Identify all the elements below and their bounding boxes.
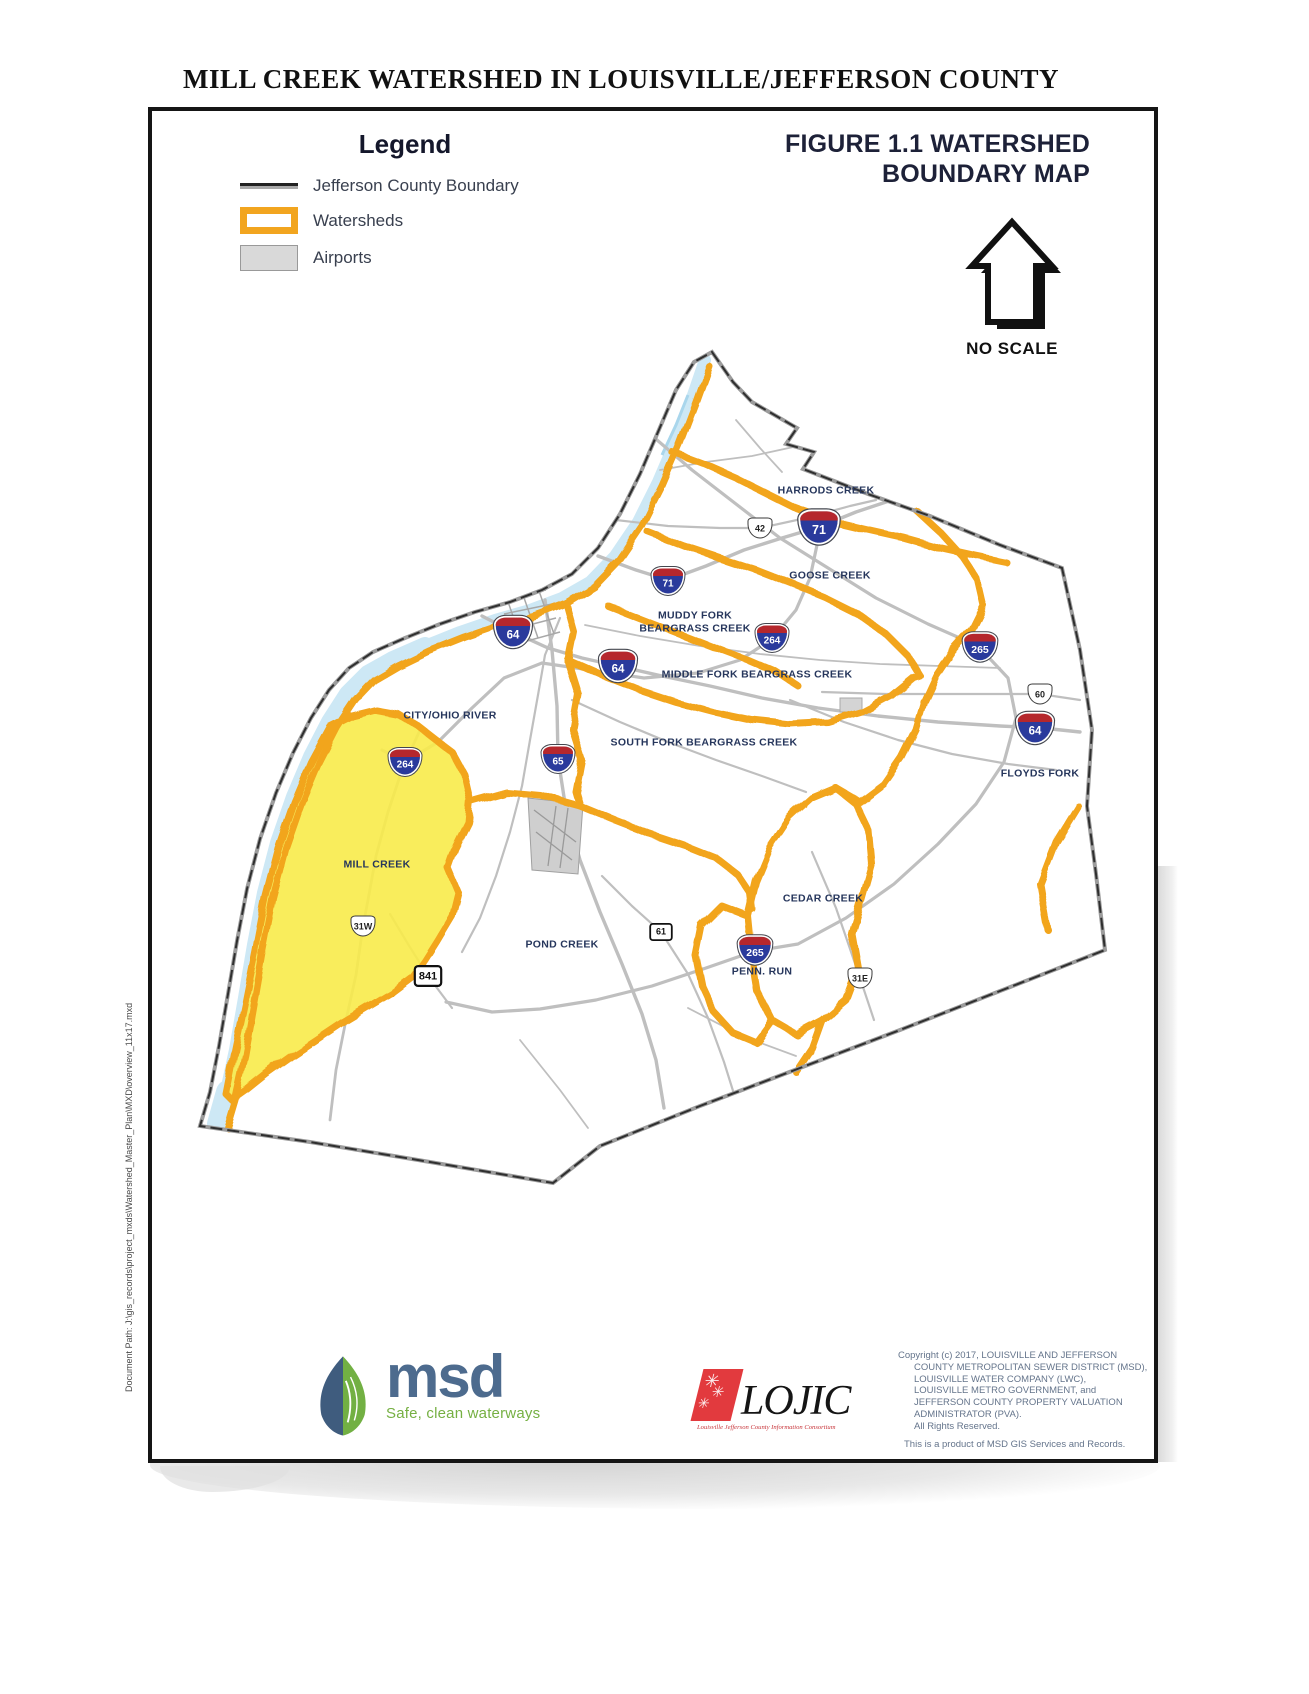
page: MILL CREEK WATERSHED IN LOUISVILLE/JEFFE… xyxy=(0,0,1309,1694)
legend-item-label: Airports xyxy=(313,248,372,268)
legend-title: Legend xyxy=(240,129,570,160)
interstate-shield-64: 64 xyxy=(601,652,636,681)
copyright-line: All Rights Reserved. xyxy=(898,1421,1162,1433)
legend-item: Airports xyxy=(240,245,570,271)
watershed-label: MIDDLE FORK BEARGRASS CREEK xyxy=(662,669,853,682)
interstate-shield-265: 265 xyxy=(739,937,771,963)
interstate-shield-71: 71 xyxy=(800,511,838,542)
interstate-shield-65: 65 xyxy=(543,747,573,772)
watershed-label: POND CREEK xyxy=(525,939,598,952)
msd-logo: msd Safe, clean waterways xyxy=(310,1351,540,1439)
watershed-label: SOUTH FORK BEARGRASS CREEK xyxy=(611,737,798,750)
copyright-block: Copyright (c) 2017, LOUISVILLE AND JEFFE… xyxy=(898,1350,1162,1450)
county-line-icon xyxy=(240,183,298,189)
figure-title-line1: FIGURE 1.1 WATERSHED xyxy=(785,129,1090,159)
scan-shadow-right xyxy=(1158,866,1178,1462)
legend-item-label: Jefferson County Boundary xyxy=(313,176,519,196)
watershed-label: CITY/OHIO RIVER xyxy=(403,710,496,723)
us-shield-31E: 31E xyxy=(848,968,873,989)
legend: Legend Jefferson County BoundaryWatershe… xyxy=(240,129,570,282)
north-arrow-block: NO SCALE xyxy=(947,214,1077,359)
watershed-label: CEDAR CREEK xyxy=(783,893,863,906)
copyright-line: Copyright (c) 2017, LOUISVILLE AND JEFFE… xyxy=(898,1350,1162,1362)
copyright-line: JEFFERSON COUNTY PROPERTY VALUATION xyxy=(898,1397,1162,1409)
us-shield-42: 42 xyxy=(748,518,773,539)
copyright-lines: Copyright (c) 2017, LOUISVILLE AND JEFFE… xyxy=(898,1350,1162,1450)
legend-item-label: Watersheds xyxy=(313,211,403,231)
copyright-line: LOUISVILLE WATER COMPANY (LWC), xyxy=(898,1374,1162,1386)
lojic-mark-icon: ✳ ✳ ✳ xyxy=(691,1369,744,1421)
watershed-label: HARRODS CREEK xyxy=(778,485,875,498)
watershed-outline-icon xyxy=(240,207,298,234)
north-arrow-icon xyxy=(952,214,1072,332)
copyright-line: LOUISVILLE METRO GOVERNMENT, and xyxy=(898,1385,1162,1397)
copyright-line: ADMINISTRATOR (PVA). xyxy=(898,1409,1162,1421)
legend-items: Jefferson County BoundaryWatershedsAirpo… xyxy=(240,176,570,271)
msd-wordmark: msd xyxy=(386,1351,540,1403)
page-title: MILL CREEK WATERSHED IN LOUISVILLE/JEFFE… xyxy=(0,64,1242,95)
watershed-label: GOOSE CREEK xyxy=(789,570,870,583)
interstate-shield-64: 64 xyxy=(496,618,531,647)
interstate-shield-265: 265 xyxy=(964,634,996,660)
interstate-shield-64: 64 xyxy=(1018,714,1053,743)
copyright-line: COUNTY METROPOLITAN SEWER DISTRICT (MSD)… xyxy=(898,1362,1162,1374)
msd-tagline: Safe, clean waterways xyxy=(386,1405,540,1422)
state-shield-61: 61 xyxy=(649,923,672,941)
watershed-label: PENN. RUN xyxy=(732,966,792,979)
watershed-label: MILL CREEK xyxy=(344,859,411,872)
copyright-line: This is a product of MSD GIS Services an… xyxy=(898,1439,1162,1451)
interstate-shield-71: 71 xyxy=(653,569,683,594)
us-shield-60: 60 xyxy=(1028,684,1053,705)
legend-item: Watersheds xyxy=(240,207,570,234)
no-scale-label: NO SCALE xyxy=(947,339,1077,359)
msd-leaf-icon xyxy=(310,1351,376,1439)
us-shield-31W: 31W xyxy=(351,916,376,937)
state-shield-841: 841 xyxy=(414,965,443,987)
map-frame: HARRODS CREEKGOOSE CREEKMUDDY FORK BEARG… xyxy=(148,107,1158,1463)
watershed-label: FLOYDS FORK xyxy=(1001,768,1080,781)
airport-fill-icon xyxy=(240,245,298,271)
figure-title: FIGURE 1.1 WATERSHED BOUNDARY MAP xyxy=(785,129,1090,189)
legend-item: Jefferson County Boundary xyxy=(240,176,570,196)
scan-shadow-bottom xyxy=(150,1463,1160,1509)
lojic-wordmark: LOJIC xyxy=(741,1381,850,1421)
figure-title-line2: BOUNDARY MAP xyxy=(785,159,1090,189)
document-path: Document Path: J:\gis_records\project_mx… xyxy=(124,872,134,1392)
interstate-shield-264: 264 xyxy=(390,750,420,775)
interstate-shield-264: 264 xyxy=(757,626,787,651)
watershed-label: MUDDY FORK BEARGRASS CREEK xyxy=(639,609,750,634)
